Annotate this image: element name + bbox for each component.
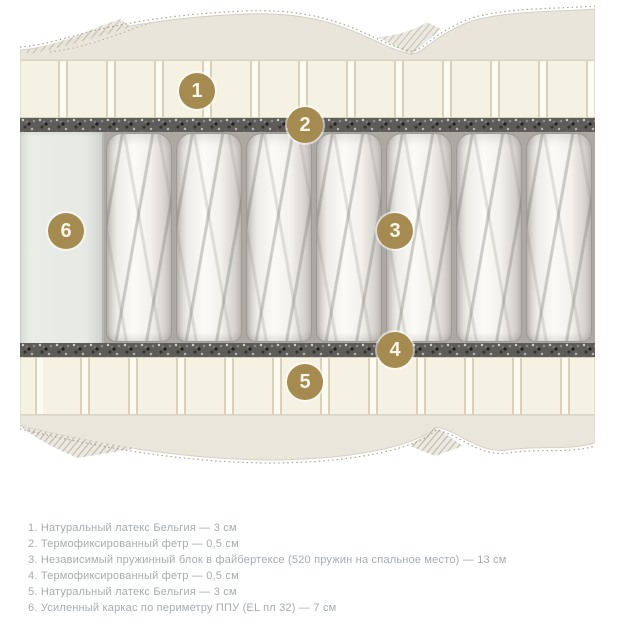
quilted-bottom-cover — [20, 415, 595, 465]
callout-badge-5: 5 — [287, 364, 323, 400]
spring-pocket — [316, 133, 382, 342]
mattress-cross-section: 1 2 3 4 5 6 — [20, 5, 595, 465]
spring-pocket — [106, 133, 172, 342]
legend-item-3: 3. Независимый пружинный блок в файберте… — [28, 552, 613, 568]
callout-badge-4: 4 — [377, 332, 413, 368]
mattress-core — [20, 132, 595, 343]
callout-badge-6: 6 — [48, 213, 84, 249]
callout-badge-3: 3 — [377, 213, 413, 249]
felt-layer-bottom — [20, 343, 595, 357]
spring-pocket — [246, 133, 312, 342]
legend-item-2: 2. Термофиксированный фетр — 0,5 см — [28, 536, 613, 552]
spring-pocket — [176, 133, 242, 342]
callout-badge-2: 2 — [287, 107, 323, 143]
mattress-layers-infographic: 1 2 3 4 5 6 1. Натуральный латекс Бельги… — [0, 0, 635, 625]
legend-item-5: 5. Натуральный латекс Бельгия — 3 см — [28, 584, 613, 600]
legend-item-4: 4. Термофиксированный фетр — 0,5 см — [28, 568, 613, 584]
spring-pocket — [456, 133, 522, 342]
spring-pocket — [526, 133, 592, 342]
legend-item-6: 6. Усиленный каркас по периметру ППУ (EL… — [28, 600, 613, 616]
layers-legend: 1. Натуральный латекс Бельгия — 3 см 2. … — [28, 520, 613, 616]
legend-item-1: 1. Натуральный латекс Бельгия — 3 см — [28, 520, 613, 536]
quilted-top-cover — [20, 5, 595, 60]
callout-badge-1: 1 — [179, 73, 215, 109]
spring-block — [104, 132, 595, 343]
